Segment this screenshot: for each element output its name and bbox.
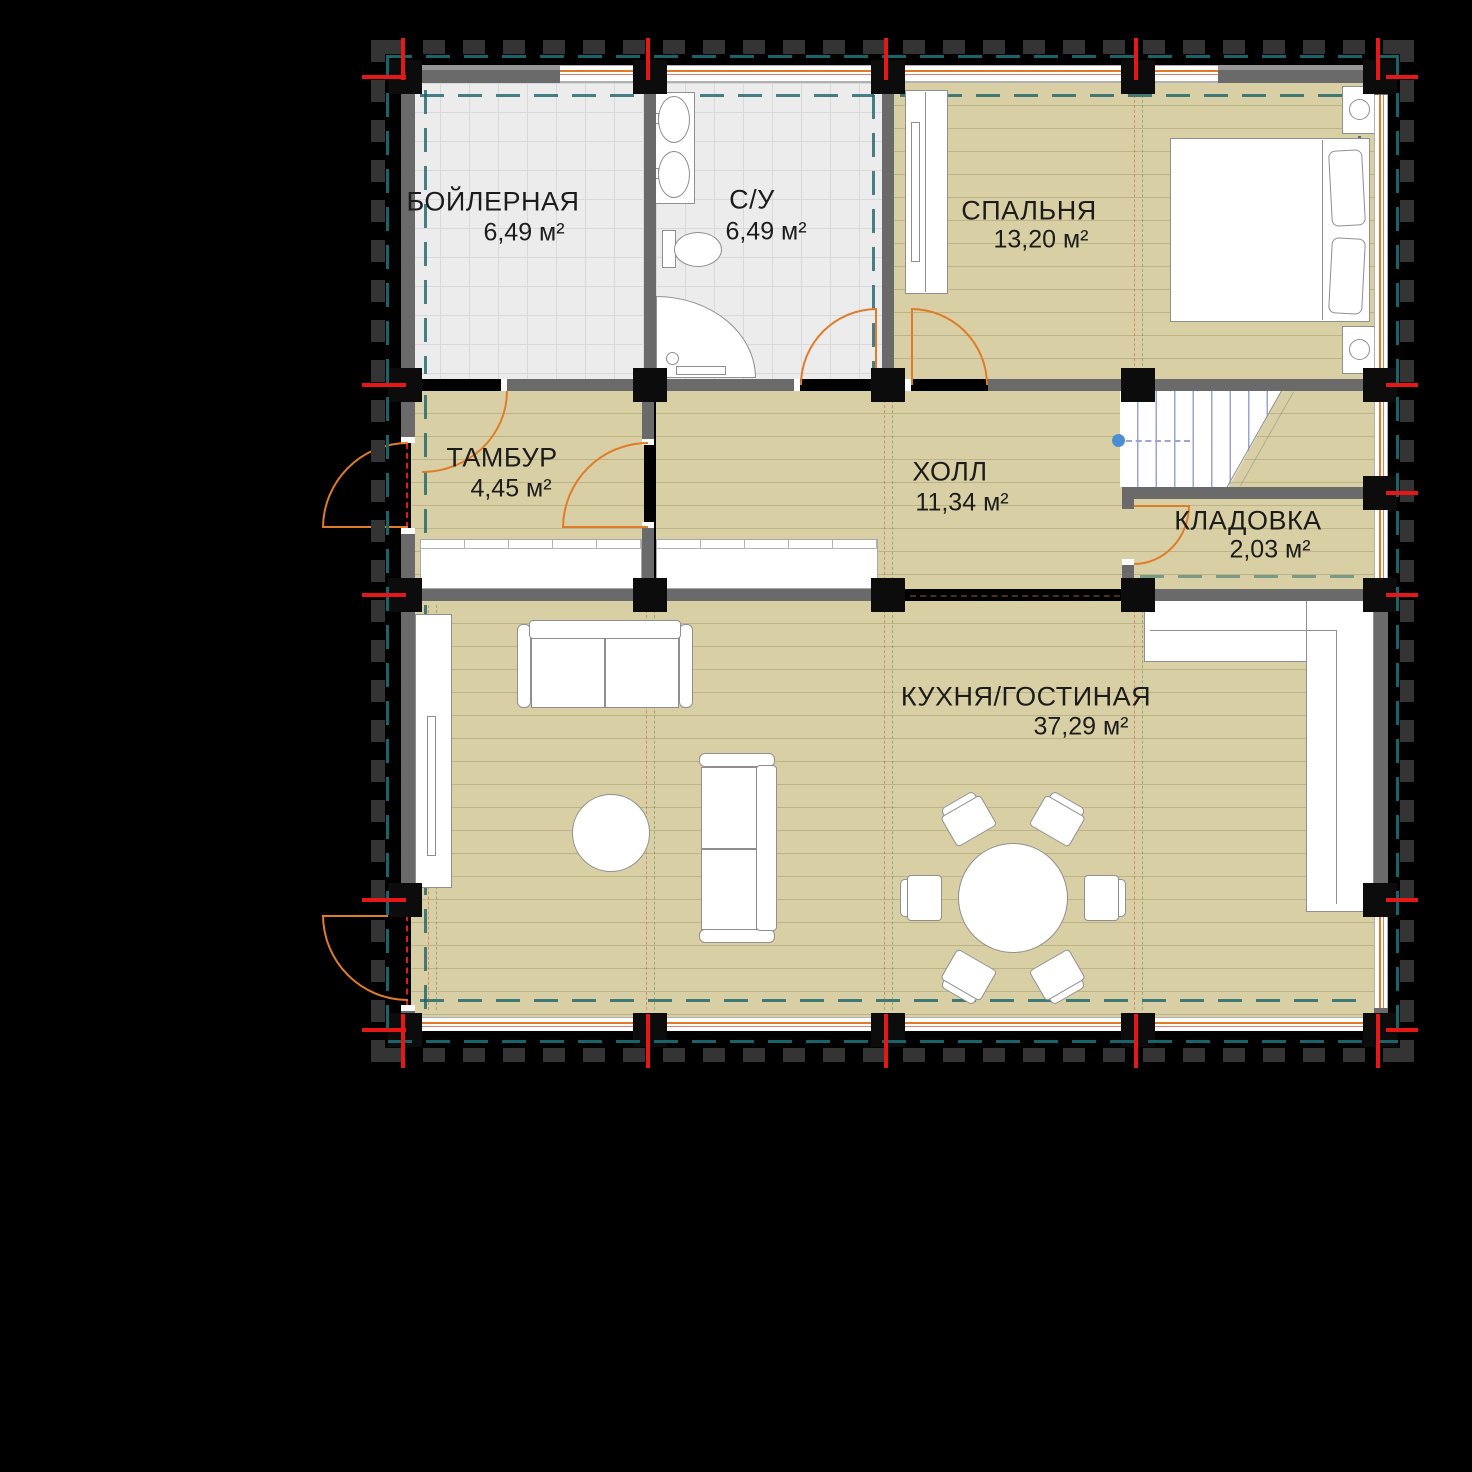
- dashed-guide: [420, 94, 636, 97]
- room-label-boiler: БОЙЛЕРНАЯ: [406, 187, 579, 218]
- column: [633, 578, 667, 612]
- hall-closet: [656, 539, 878, 589]
- axis-tick: [646, 1014, 650, 1068]
- sofa-small: [695, 753, 779, 943]
- exterior-dashed-line: [1396, 55, 1399, 1043]
- dashed-guide: [420, 999, 1366, 1002]
- window-top: [656, 65, 882, 83]
- dashed-guide: [900, 94, 1366, 97]
- axis-tick: [1386, 593, 1418, 597]
- axis-tick: [1386, 491, 1418, 495]
- window-top: [560, 65, 644, 83]
- exterior-dashed-line: [388, 1040, 1398, 1043]
- sofa-seat: [605, 638, 679, 708]
- chair-seat: [907, 875, 942, 921]
- pillow: [1328, 237, 1366, 315]
- shower-drain: [666, 352, 679, 365]
- wall-exterior-left: [401, 601, 415, 915]
- sofa-armrest: [699, 929, 775, 943]
- window-top: [1144, 65, 1218, 83]
- axis-tick: [1386, 383, 1418, 387]
- axis-tick: [1134, 1014, 1138, 1068]
- toilet-bowl: [674, 232, 722, 267]
- room-area-boiler: 6,49 м²: [483, 219, 564, 248]
- exterior-dashed-line: [386, 55, 389, 1043]
- door-jamb: [401, 1005, 415, 1011]
- window-right: [1374, 499, 1388, 589]
- closet-track: [421, 540, 641, 549]
- window-right: [1374, 95, 1388, 373]
- wall-boiler-bathroom: [644, 83, 656, 379]
- axis-line: [892, 605, 893, 1010]
- exterior-dashed-line: [388, 55, 1398, 58]
- room-label-hall: ХОЛЛ: [912, 457, 987, 488]
- stair-start-dot: [1112, 434, 1125, 447]
- axis-line: [892, 395, 893, 585]
- sofa-large: [517, 620, 693, 712]
- column: [871, 578, 905, 612]
- shower-fittings: [676, 366, 726, 375]
- door-jamb: [401, 528, 415, 534]
- lamp: [1349, 99, 1370, 120]
- room-label-bathroom: С/У: [729, 185, 775, 216]
- counter-edge-line: [1336, 630, 1337, 904]
- column: [633, 60, 667, 94]
- axis-tick: [362, 383, 406, 387]
- room-area-bedroom: 13,20 м²: [993, 226, 1088, 255]
- axis-line: [1134, 605, 1135, 1010]
- axis-line: [1142, 90, 1143, 376]
- bed-blanket-line: [1322, 140, 1323, 320]
- room-area-vestibule: 4,45 м²: [470, 475, 551, 504]
- axis-tick: [1386, 1028, 1418, 1032]
- dashed-guide: [1140, 575, 1366, 578]
- tv-screen: [427, 716, 436, 856]
- door-jamb: [501, 379, 507, 391]
- exterior-hatch: [383, 1048, 1405, 1062]
- door-jamb: [1122, 559, 1134, 565]
- axis-tick: [401, 1014, 405, 1068]
- room-area-bathroom: 6,49 м²: [725, 218, 806, 247]
- kitchen-counter-side: [1306, 600, 1374, 912]
- room-label-bedroom: СПАЛЬНЯ: [961, 196, 1096, 227]
- room-label-kitchen-living: КУХНЯ/ГОСТИНАЯ: [901, 682, 1151, 713]
- wardrobe-door-line: [925, 92, 926, 292]
- window-right: [1374, 391, 1388, 487]
- room-area-hall: 11,34 м²: [915, 489, 1008, 518]
- door-arc-terrace: [322, 915, 408, 1001]
- sofa-seat: [531, 638, 605, 708]
- chair-seat: [1084, 875, 1119, 921]
- column: [1121, 368, 1155, 402]
- wardrobe-rod: [911, 122, 920, 262]
- axis-line: [884, 395, 885, 585]
- counter-edge-line: [1150, 630, 1336, 631]
- sink-basin: [658, 96, 690, 143]
- opening-guide: [910, 595, 1120, 597]
- column: [1121, 578, 1155, 612]
- exterior-hatch: [371, 40, 385, 1062]
- axis-tick: [1386, 75, 1418, 79]
- room-area-kitchen-living: 37,29 м²: [1033, 713, 1128, 742]
- wall-storage-kitchen: [1138, 589, 1374, 601]
- floor-plan-canvas: { "plan": { "kind": "architectural floor…: [0, 0, 1472, 1472]
- window-right: [1374, 913, 1388, 1008]
- axis-tick: [362, 75, 406, 79]
- axis-tick: [401, 38, 405, 80]
- axis-tick: [1376, 1014, 1380, 1068]
- column: [633, 368, 667, 402]
- wall-bathroom-bedroom: [882, 83, 894, 379]
- sofa-back: [529, 620, 681, 639]
- sofa-seat: [701, 849, 757, 930]
- wall-exterior-top: [1218, 65, 1374, 83]
- sofa-seat: [701, 767, 757, 849]
- wall-exterior-left: [401, 83, 415, 379]
- axis-tick: [884, 1014, 888, 1068]
- axis-tick: [884, 38, 888, 80]
- axis-tick: [1376, 38, 1380, 80]
- sofa-back: [756, 765, 777, 931]
- nightstand: [1342, 326, 1378, 374]
- axis-tick: [1134, 38, 1138, 80]
- axis-line: [1142, 605, 1143, 1010]
- exterior-hatch: [383, 40, 1405, 54]
- sink-basin: [658, 151, 690, 198]
- column: [871, 60, 905, 94]
- axis-tick: [362, 898, 406, 902]
- axis-tick: [646, 38, 650, 80]
- axis-tick: [362, 1028, 406, 1032]
- wall-stairs-storage: [1122, 487, 1374, 499]
- wall-exterior-top: [403, 65, 560, 83]
- exterior-hatch: [1400, 40, 1414, 1062]
- dining-chair: [900, 875, 942, 921]
- axis-tick: [1386, 898, 1418, 902]
- dining-table: [958, 843, 1068, 953]
- stair-direction-line: [1126, 440, 1190, 442]
- column: [1121, 60, 1155, 94]
- window-top: [894, 65, 1132, 83]
- axis-line: [1134, 90, 1135, 376]
- room-area-storage: 2,03 м²: [1229, 536, 1310, 565]
- room-label-vestibule: ТАМБУР: [446, 443, 557, 474]
- closet-track: [657, 540, 877, 549]
- dashed-guide: [424, 90, 427, 374]
- wall-storage-left: [1122, 499, 1134, 509]
- vestibule-closet: [420, 539, 642, 589]
- door-arc-entrance: [322, 442, 408, 528]
- axis-line: [884, 605, 885, 1010]
- pillow: [1328, 149, 1366, 227]
- lamp: [1349, 339, 1370, 360]
- wall-interior-h1: [988, 379, 1374, 391]
- dining-chair: [1084, 875, 1126, 921]
- coffee-table: [572, 794, 650, 872]
- wall-exterior-right: [1374, 601, 1388, 913]
- room-label-storage: КЛАДОВКА: [1174, 506, 1321, 537]
- sofa-armrest: [679, 624, 693, 708]
- axis-tick: [362, 593, 406, 597]
- column: [871, 368, 905, 402]
